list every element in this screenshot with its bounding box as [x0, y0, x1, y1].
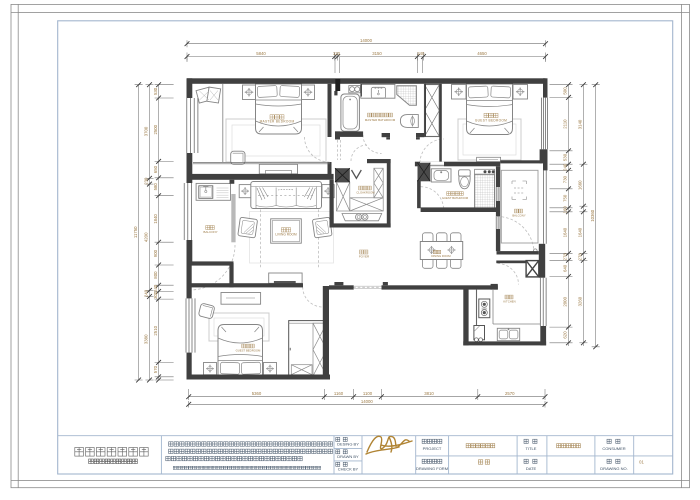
svg-text:BALCONY: BALCONY	[512, 214, 526, 218]
svg-text:240: 240	[563, 163, 568, 171]
svg-text:14000: 14000	[361, 399, 374, 404]
svg-text:2000: 2000	[563, 296, 568, 306]
svg-text:240: 240	[144, 289, 149, 297]
svg-text:1840: 1840	[153, 214, 158, 224]
svg-text:4200: 4200	[144, 232, 149, 242]
svg-text:3810: 3810	[424, 391, 434, 396]
svg-text:900: 900	[153, 249, 158, 257]
svg-text:DRAWING FORM: DRAWING FORM	[416, 466, 448, 471]
svg-text:KITCHEN: KITCHEN	[503, 300, 515, 304]
svg-text:5360: 5360	[252, 391, 262, 396]
svg-text:500: 500	[563, 87, 568, 95]
svg-text:240: 240	[417, 51, 425, 56]
svg-text:160: 160	[563, 206, 568, 214]
svg-text:2500: 2500	[153, 124, 158, 134]
svg-text:230: 230	[144, 177, 149, 185]
svg-text:10360: 10360	[590, 209, 595, 222]
svg-text:2570: 2570	[505, 391, 515, 396]
svg-text:MASTER BATHROOM: MASTER BATHROOM	[365, 118, 396, 122]
svg-text:FOYER: FOYER	[359, 255, 370, 259]
svg-text:2110: 2110	[563, 119, 568, 129]
svg-text:1640: 1640	[563, 227, 568, 237]
svg-text:DRAWN BY: DRAWN BY	[337, 454, 359, 459]
svg-text:800: 800	[153, 271, 158, 279]
svg-text:580: 580	[153, 183, 158, 191]
svg-text:650: 650	[153, 165, 158, 173]
svg-text:240: 240	[153, 284, 158, 292]
svg-text:01: 01	[639, 459, 644, 464]
svg-text:570: 570	[153, 365, 158, 373]
svg-text:3700: 3700	[144, 126, 149, 136]
svg-text:1100: 1100	[363, 391, 373, 396]
svg-text:750: 750	[563, 194, 568, 202]
svg-text:300: 300	[153, 291, 158, 299]
svg-text:LIVING ROOM: LIVING ROOM	[275, 232, 297, 236]
svg-text:GUEST BATHROOM: GUEST BATHROOM	[442, 196, 469, 200]
svg-text:BALCONY: BALCONY	[203, 230, 217, 234]
svg-text:3150: 3150	[372, 51, 382, 56]
svg-text:CONSUMER: CONSUMER	[602, 446, 625, 451]
svg-text:278: 278	[578, 253, 583, 261]
svg-text:3380: 3380	[144, 334, 149, 344]
svg-text:730: 730	[563, 175, 568, 183]
svg-text:4650: 4650	[477, 51, 487, 56]
svg-text:620: 620	[563, 331, 568, 339]
svg-text:11750: 11750	[133, 226, 138, 238]
svg-text:DINING ROOM: DINING ROOM	[431, 254, 451, 258]
svg-text:DRAWING NO.: DRAWING NO.	[600, 466, 627, 471]
svg-text:14000: 14000	[360, 38, 373, 43]
svg-text:640: 640	[563, 264, 568, 272]
svg-text:120: 120	[333, 51, 341, 56]
svg-text:DESING BY: DESING BY	[337, 442, 359, 447]
svg-text:530: 530	[563, 153, 568, 161]
svg-text:PROJECT: PROJECT	[423, 446, 442, 451]
svg-text:3260: 3260	[578, 296, 583, 306]
svg-text:530: 530	[153, 87, 158, 95]
svg-text:1160: 1160	[334, 391, 344, 396]
svg-text:GUEST BEDROOM: GUEST BEDROOM	[475, 119, 507, 123]
svg-text:MASTER BEDROOM: MASTER BEDROOM	[260, 120, 295, 124]
svg-text:3140: 3140	[578, 119, 583, 129]
svg-text:DATE: DATE	[526, 466, 537, 471]
svg-text:TITLE: TITLE	[526, 446, 537, 451]
svg-text:1660: 1660	[578, 180, 583, 190]
svg-text:CHECK BY: CHECK BY	[338, 467, 359, 472]
svg-text:GUEST BEDROOM: GUEST BEDROOM	[236, 349, 261, 353]
svg-text:CLOAKROOM: CLOAKROOM	[356, 191, 375, 195]
svg-text:5840: 5840	[256, 51, 266, 56]
svg-text:2510: 2510	[153, 325, 158, 335]
svg-text:278: 278	[563, 253, 568, 261]
svg-text:1640: 1640	[578, 227, 583, 237]
